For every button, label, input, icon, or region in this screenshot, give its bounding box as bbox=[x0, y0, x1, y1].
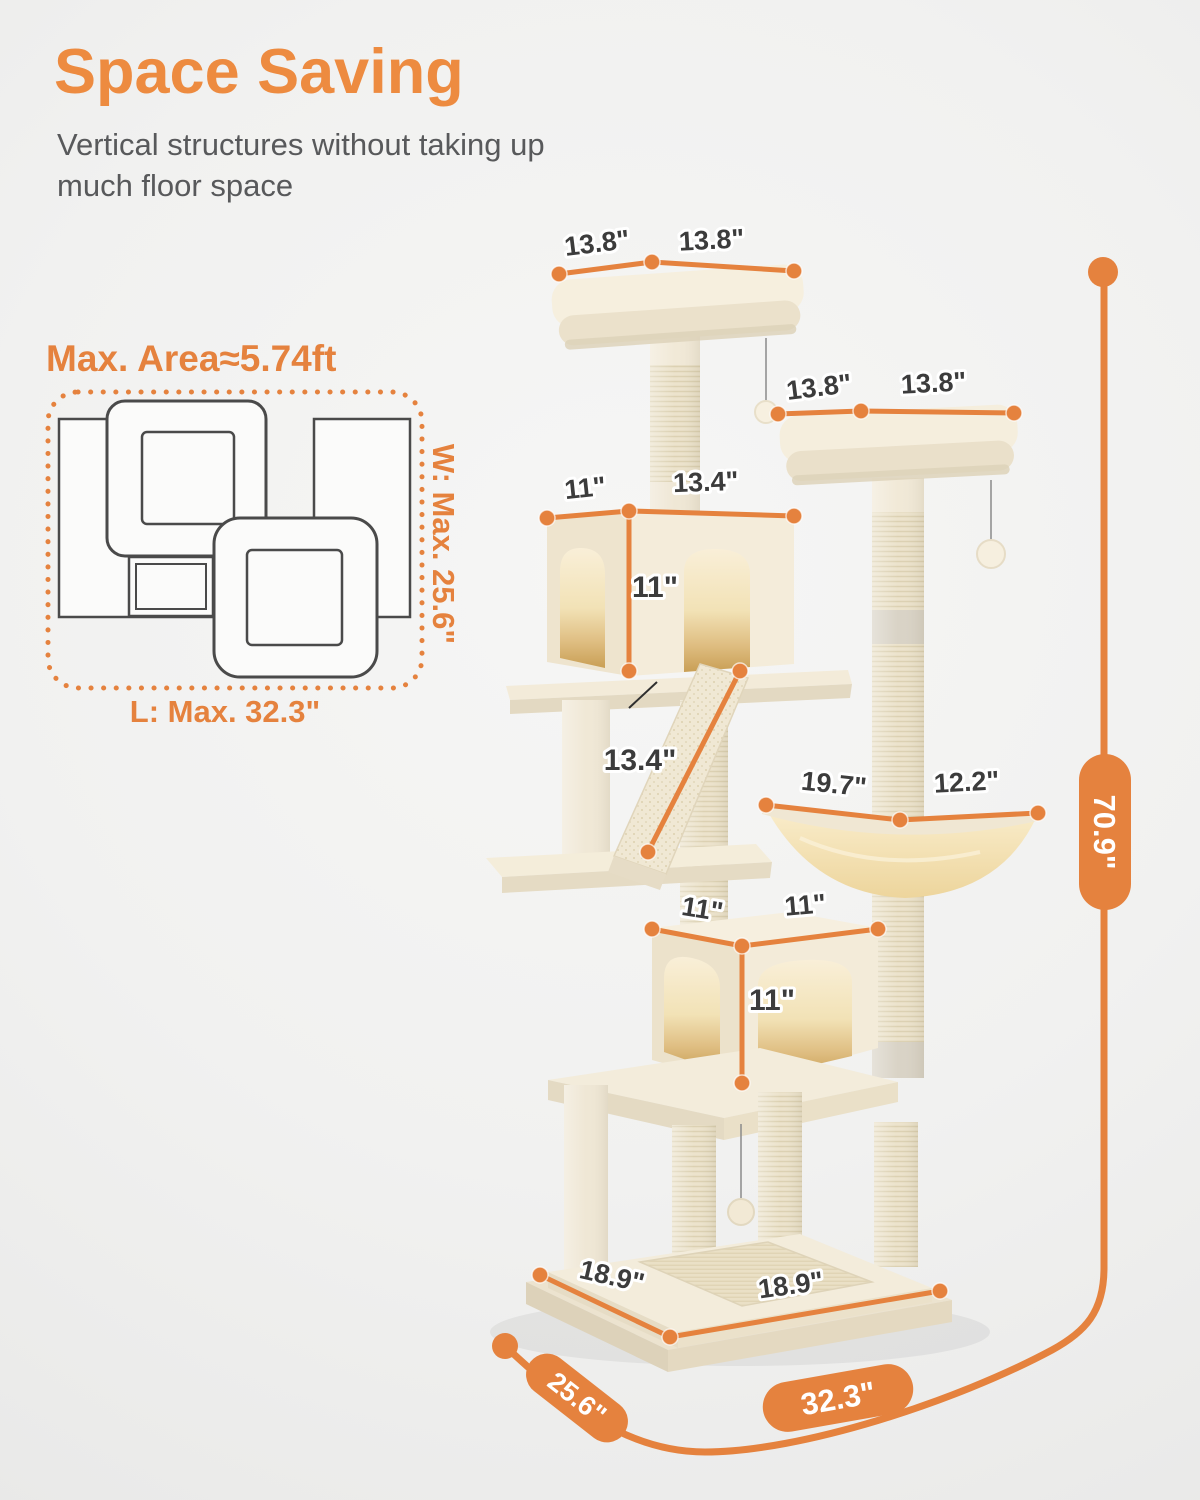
upper-condo bbox=[506, 508, 852, 714]
lower-condo-side-arch bbox=[664, 957, 720, 1072]
upper-condo-side-arch bbox=[560, 548, 605, 668]
upper-condo-front-arch bbox=[684, 549, 750, 672]
pom-ball-bottom bbox=[728, 1199, 754, 1225]
tall-right-post bbox=[872, 478, 924, 1078]
top-platform bbox=[550, 263, 806, 350]
length-badge: 32.3" bbox=[759, 1360, 917, 1436]
swoosh-start-dot bbox=[492, 1333, 518, 1359]
height-top-dot bbox=[1088, 257, 1118, 287]
pom-ball-right bbox=[977, 540, 1005, 568]
floorplan-diagram bbox=[48, 392, 422, 688]
top-platform-right-label: 13.8" bbox=[678, 223, 745, 256]
lower-condo-width-label: 11" bbox=[783, 888, 827, 921]
upper-condo-depth-label: 11" bbox=[563, 471, 607, 505]
height-badge: 70.9" bbox=[1079, 754, 1131, 910]
lower-condo-depth-label: 11" bbox=[680, 891, 726, 927]
ramp-length-label: 13.4" bbox=[604, 744, 677, 777]
hammock-width-label: 19.7" bbox=[800, 766, 868, 803]
hammock-depth-label: 12.2" bbox=[933, 765, 1000, 798]
top-platform-left-label: 13.8" bbox=[563, 224, 632, 262]
second-platform-left-label: 13.8" bbox=[785, 368, 854, 406]
scene-canvas: 13.8" 13.8" 13.8" 13.8" 11" 13.4" 11" 13… bbox=[0, 0, 1200, 1500]
lower-condo-height-label: 11" bbox=[749, 984, 795, 1017]
upper-condo-width-label: 13.4" bbox=[673, 466, 739, 498]
floorplan-small-board bbox=[129, 557, 213, 616]
upper-condo-height-label: 11" bbox=[632, 571, 678, 604]
floorplan-platform-b bbox=[214, 518, 377, 677]
second-platform bbox=[779, 404, 1020, 486]
infographic-page: Space Saving Vertical structures without… bbox=[0, 0, 1200, 1500]
second-platform-dim-line bbox=[778, 411, 1014, 414]
second-platform-right-label: 13.8" bbox=[900, 366, 967, 399]
height-badge-label: 70.9" bbox=[1087, 794, 1122, 869]
